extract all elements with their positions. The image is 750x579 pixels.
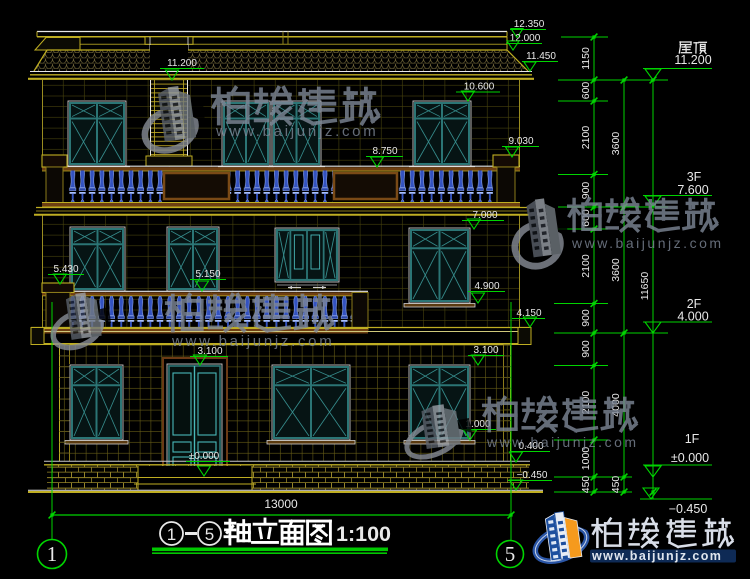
svg-text:7.600: 7.600	[677, 183, 708, 197]
svg-text:450: 450	[610, 476, 622, 494]
svg-text:900: 900	[580, 309, 592, 327]
svg-text:www.baijunjz.com: www.baijunjz.com	[591, 549, 722, 563]
svg-text:5: 5	[205, 525, 214, 544]
svg-text:5.150: 5.150	[195, 269, 220, 280]
svg-text:www.baijunjz.com: www.baijunjz.com	[571, 235, 724, 251]
svg-text:4.000: 4.000	[677, 310, 708, 324]
svg-text:3F: 3F	[687, 170, 702, 184]
svg-text:4.900: 4.900	[474, 281, 499, 292]
svg-text:900: 900	[580, 340, 592, 358]
svg-text:5.430: 5.430	[53, 264, 78, 275]
svg-text:±0.000: ±0.000	[189, 451, 220, 462]
svg-text:1150: 1150	[580, 47, 592, 70]
svg-text:www.baijunjz.com: www.baijunjz.com	[486, 434, 639, 450]
svg-text:11.200: 11.200	[167, 58, 197, 69]
svg-text:12.000: 12.000	[510, 33, 541, 44]
svg-text:1F: 1F	[685, 432, 700, 446]
svg-text:www.baijunjz.com: www.baijunjz.com	[171, 333, 334, 350]
svg-text:2100: 2100	[580, 126, 592, 150]
svg-text:2100: 2100	[580, 254, 592, 278]
svg-text:3600: 3600	[610, 258, 622, 282]
svg-text:−0.450: −0.450	[517, 470, 548, 481]
svg-text:8.750: 8.750	[372, 146, 397, 157]
svg-text:13000: 13000	[264, 497, 298, 511]
svg-text:3.100: 3.100	[473, 345, 498, 356]
svg-text:3600: 3600	[610, 132, 622, 156]
svg-text:11.200: 11.200	[674, 53, 711, 67]
svg-text:±0.000: ±0.000	[671, 451, 709, 465]
svg-text:www.baijunjz.com: www.baijunjz.com	[215, 123, 378, 140]
svg-text:450: 450	[580, 476, 592, 494]
svg-text:1: 1	[47, 542, 58, 566]
svg-text:5: 5	[505, 542, 516, 566]
svg-text:−0.450: −0.450	[669, 502, 708, 516]
svg-text:9.030: 9.030	[508, 136, 533, 147]
svg-text:11650: 11650	[639, 272, 651, 301]
svg-text:11.450: 11.450	[526, 51, 556, 62]
svg-text:900: 900	[580, 182, 592, 200]
svg-text:1: 1	[167, 525, 176, 544]
svg-text:1:100: 1:100	[336, 522, 391, 546]
svg-text:600: 600	[580, 82, 592, 100]
svg-text:1000: 1000	[580, 447, 592, 471]
